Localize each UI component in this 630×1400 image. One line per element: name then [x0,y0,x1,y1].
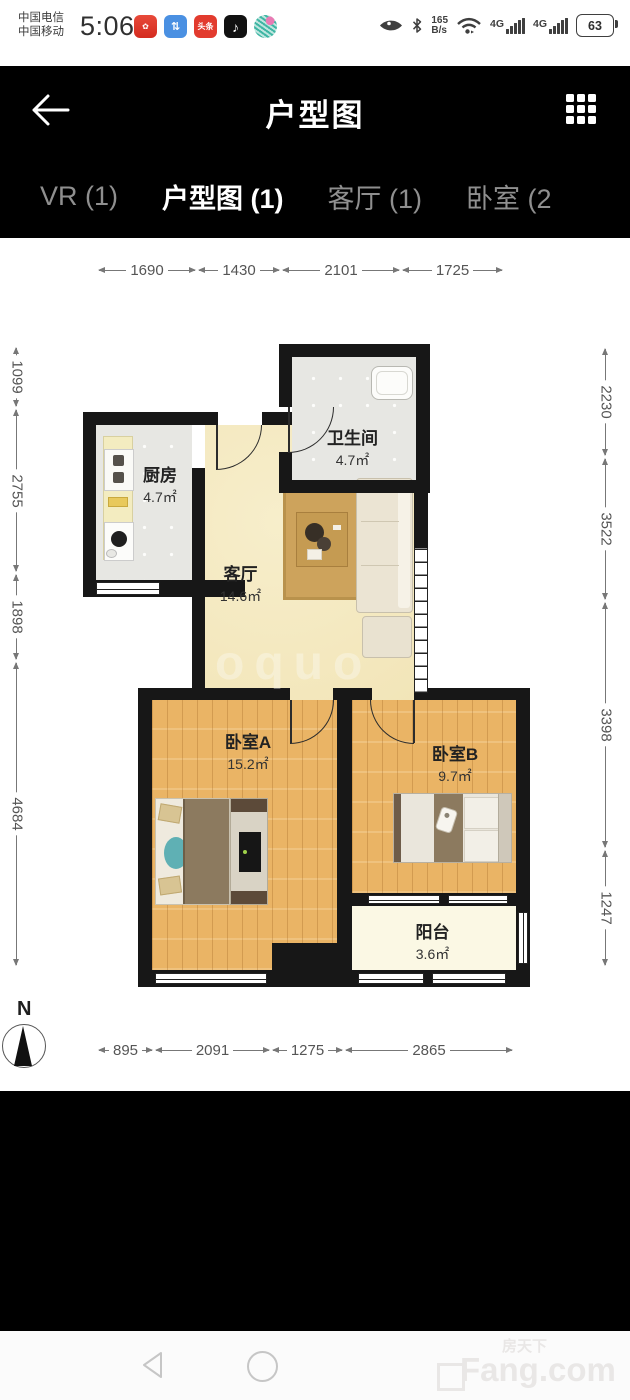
eye-icon [379,18,403,33]
fang-watermark-en: Fang.com [460,1351,616,1389]
balcony-window-1 [358,973,424,984]
carrier-line1: 中国电信 [18,12,64,26]
status-bar: 中国电信 中国移动 5:06 ✿ ⇅ 头条 ♪ 165 B/s 4G 4G 63 [0,0,630,66]
category-tab-bar: VR (1) 户型图 (1) 客厅 (1) 卧室 (2 [0,155,630,238]
fang-watermark-cn: 房天下 [502,1335,547,1356]
bedroomA-tv [239,832,261,872]
letterbox-area [0,1091,630,1331]
dim-left-1: 1099 [8,347,25,407]
room-label-balcony: 阳台3.6㎡ [390,918,475,964]
bedroomB-balcony-window-2 [448,895,508,904]
clock: 5:06 [80,11,135,42]
bedroomA-wardrobe [230,798,268,905]
bedroomB-bed [393,793,512,863]
title-bar: 户型图 [0,66,630,155]
bathtub [371,366,413,400]
room-label-kitchen: 厨房4.7㎡ [120,461,200,507]
blue-app-icon: ⇅ [164,15,187,38]
tiktok-icon: ♪ [224,15,247,38]
bedroomB-balcony-window-1 [368,895,440,904]
system-nav-bar: Fang.com 房天下 [0,1331,630,1400]
dim-right-4: 1247 [597,850,614,966]
dim-bottom-4: 2865 [345,1042,513,1059]
compass-icon [2,1024,46,1068]
carrier-labels: 中国电信 中国移动 [18,12,64,39]
dim-right-1: 2230 [597,348,614,456]
dim-left-4: 4684 [8,662,25,966]
nav-back-icon[interactable] [140,1350,164,1380]
cellular-signal-1: 4G [490,18,525,34]
dim-right-2: 3522 [597,458,614,600]
tab-livingroom[interactable]: 客厅 (1) [328,177,423,216]
dim-top-2: 1430 [198,262,280,279]
nav-home-icon[interactable] [247,1351,278,1382]
tab-floorplan[interactable]: 户型图 (1) [162,177,284,216]
kitchen-window [96,582,160,595]
tab-bedroom[interactable]: 卧室 (2 [466,177,552,216]
toutiao-icon: 头条 [194,15,217,38]
status-right-cluster: 165 B/s 4G 4G 63 [379,14,614,37]
dim-bottom-2: 2091 [155,1042,270,1059]
grid-menu-icon [566,94,574,102]
page-title: 户型图 [0,90,630,135]
kitchen-stove [104,522,134,561]
room-label-bathroom: 卫生间4.7㎡ [305,424,400,470]
dim-top-3: 2101 [282,262,400,279]
dim-right-3: 3398 [597,602,614,848]
bedroomA-window [155,973,267,984]
floorplan-image[interactable]: 厨房4.7㎡ 卫生间4.7㎡ 客厅14.6㎡ 卧室A15.2㎡ 卧室B9.7㎡ … [0,238,630,1091]
grid-menu-button[interactable] [566,94,600,124]
coffee-table [296,512,348,567]
bluetooth-icon [411,17,423,34]
fang-watermark: Fang.com 房天下 [430,1331,630,1400]
migu-swirl-icon [254,15,277,38]
balcony-window-2 [432,973,506,984]
compass-north-label: N [17,998,31,1021]
wifi-icon [456,16,482,35]
photo-watermark: oquo [215,636,372,691]
dim-top-4: 1725 [402,262,503,279]
dim-bottom-1: 895 [98,1042,153,1059]
notification-app-icons: ✿ ⇅ 头条 ♪ [134,15,277,38]
tab-vr[interactable]: VR (1) [40,181,118,212]
dim-left-2: 2755 [8,409,25,572]
network-speed: 165 B/s [431,16,448,36]
bedroomA-bed [155,798,230,905]
dim-left-3: 1898 [8,574,25,660]
room-label-livingroom: 客厅14.6㎡ [198,560,283,606]
livingroom-side-window [414,548,428,693]
cellular-signal-2: 4G [533,18,568,34]
dim-top-1: 1690 [98,262,196,279]
room-label-bedroomB: 卧室B9.7㎡ [410,740,500,786]
carrier-line2: 中国移动 [18,26,64,40]
battery-indicator: 63 [576,14,614,37]
balcony-side-window [518,912,528,964]
dim-bottom-3: 1275 [272,1042,343,1059]
room-label-bedroomA: 卧室A15.2㎡ [203,728,293,774]
sofa [356,478,413,613]
red-app-icon: ✿ [134,15,157,38]
